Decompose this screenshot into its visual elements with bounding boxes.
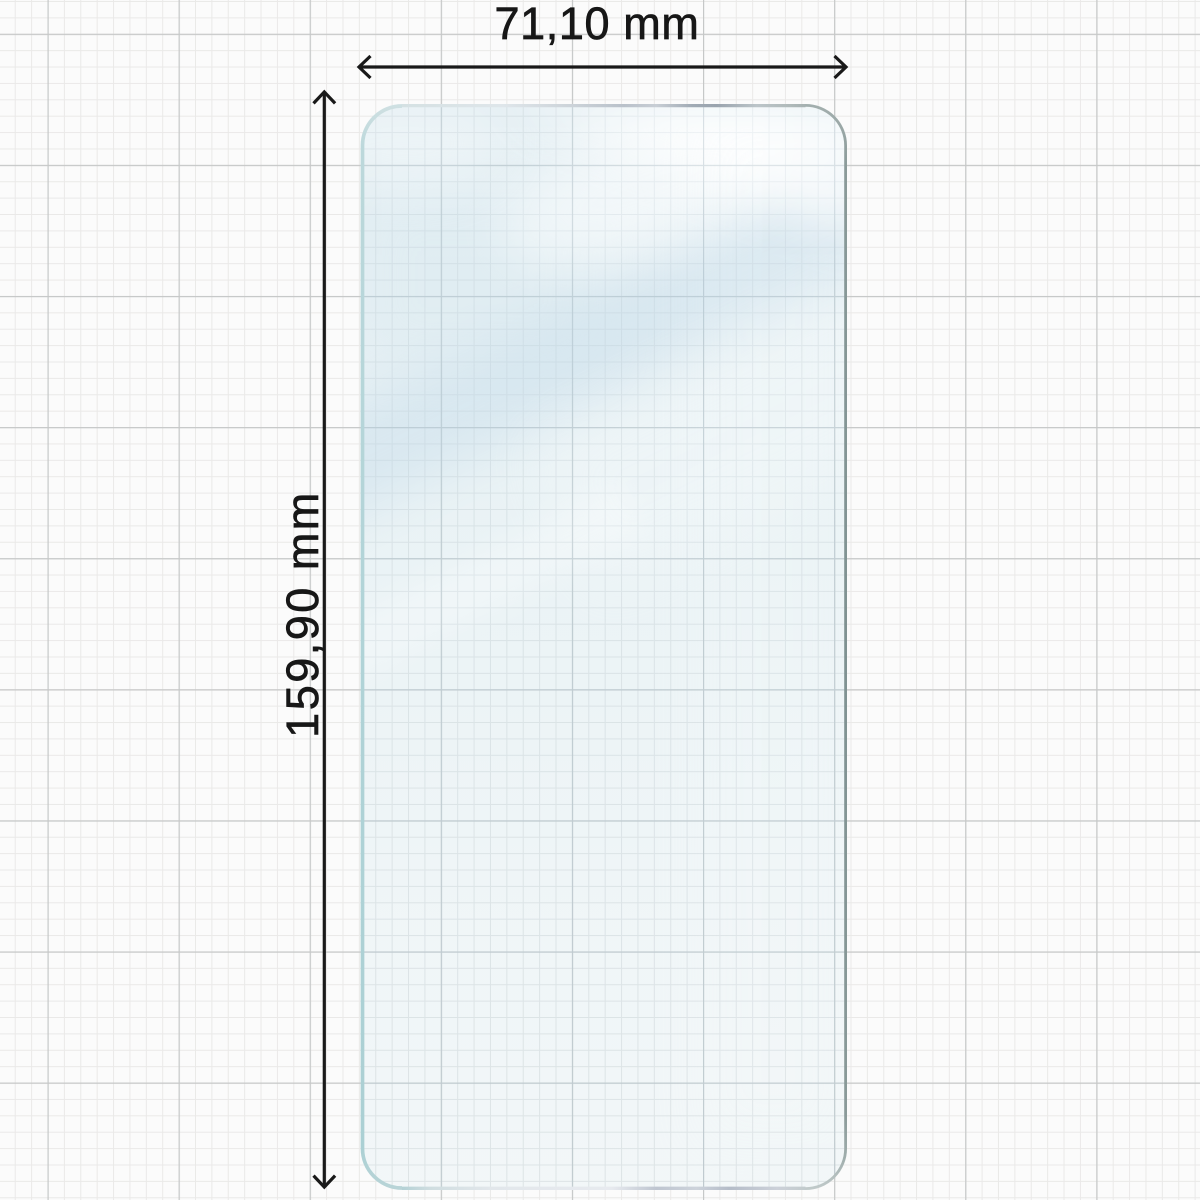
svg-text:71,10 mm: 71,10 mm [495,0,700,49]
svg-text:159,90 mm: 159,90 mm [277,490,328,738]
